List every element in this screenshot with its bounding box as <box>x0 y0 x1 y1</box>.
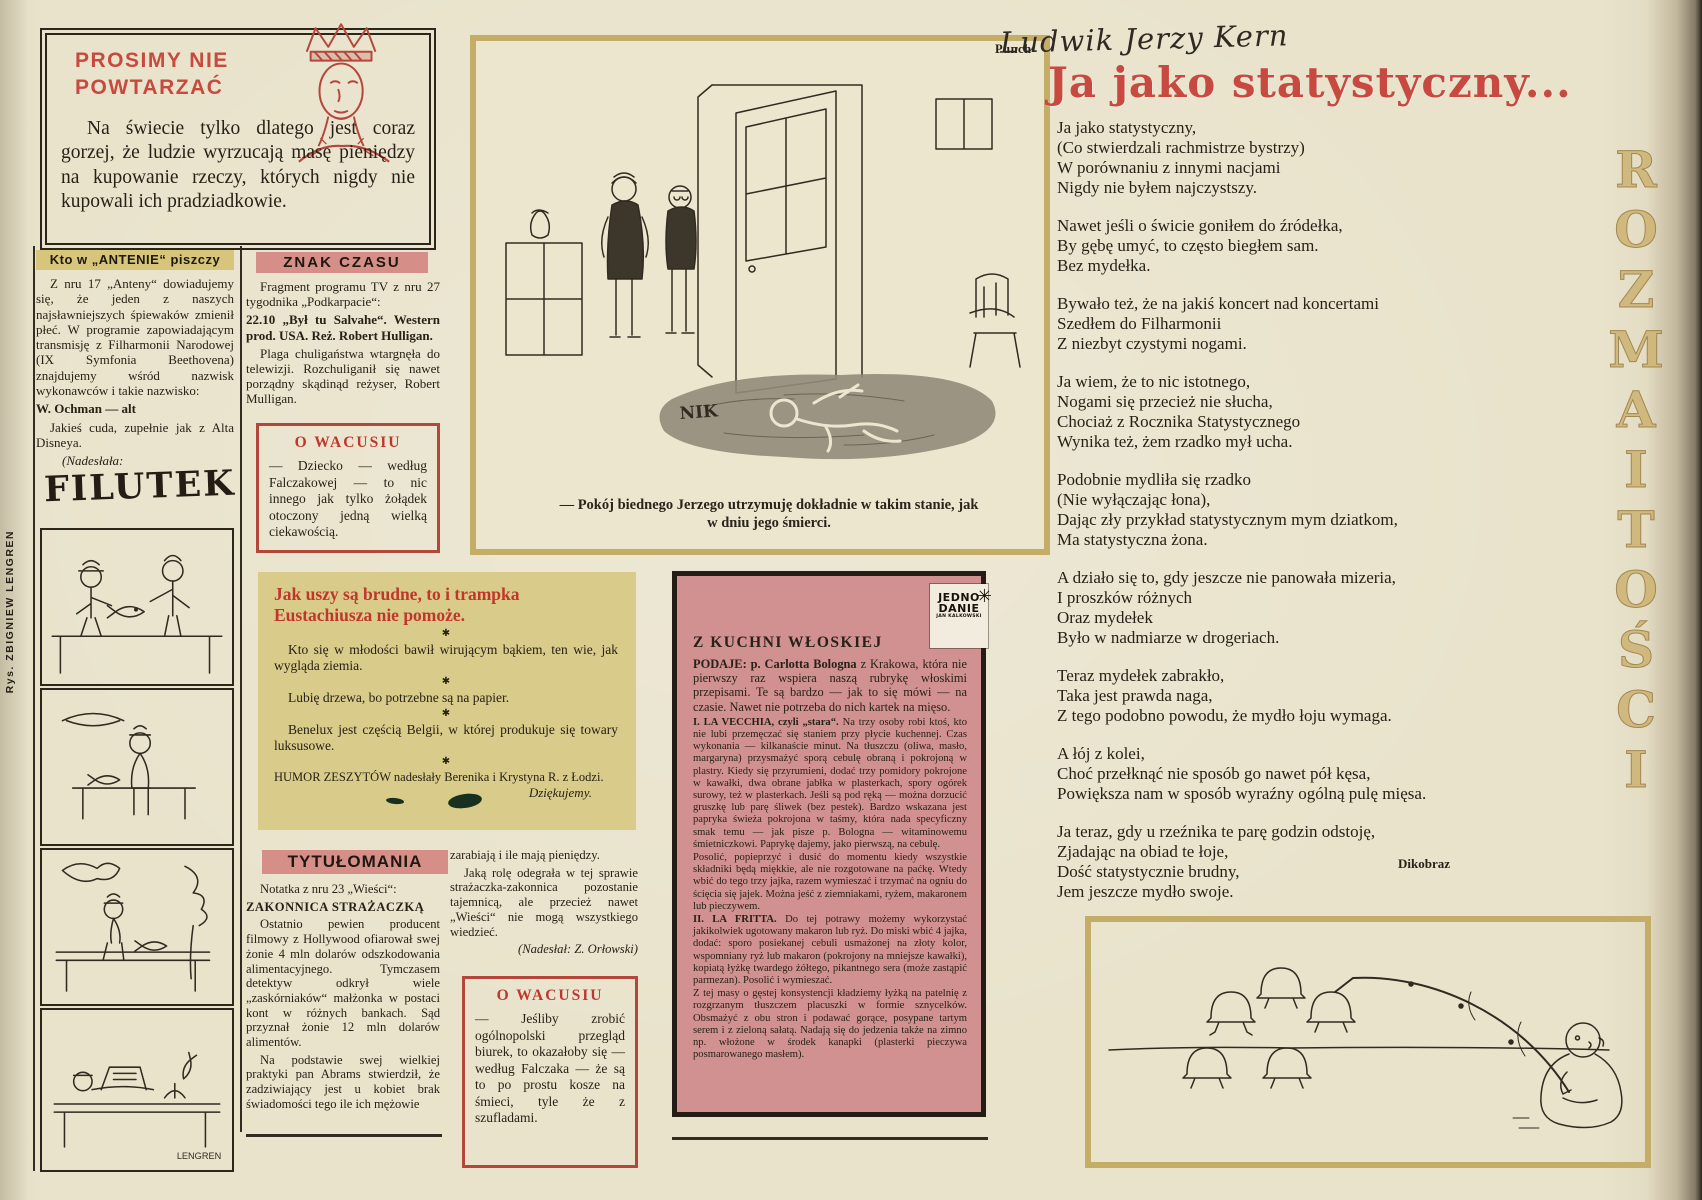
jedno-danie-logo: ✳ JEDNO DANIE JAN KALKOWSKI <box>930 584 988 648</box>
kuchnia-intro-lead: PODAJE: p. Carlotta Bologna <box>693 657 857 671</box>
tytul-p1: Notatka z nru 23 „Wieści“: <box>246 882 440 897</box>
humor-credit: HUMOR ZESZYTÓW nadesłały Berenika i Krys… <box>274 770 618 785</box>
separator-star: ✱ <box>274 708 618 720</box>
znak-p3: Plaga chuligaństwa wtargnęła do telewizj… <box>246 346 440 407</box>
poem-author-signature: Ludwik Jerzy Kern <box>1000 18 1289 60</box>
poem-stanza: Bywało też, że na jakiś koncert nad konc… <box>1057 294 1577 354</box>
kuchnia-wloska-box: Z KUCHNI WŁOSKIEJ PODAJE: p. Carlotta Bo… <box>672 571 986 1117</box>
separator-star: ✱ <box>274 756 618 768</box>
znak-p1: Fragment programu TV z nru 27 tygodnika … <box>246 279 440 309</box>
znak-czasu-body: Fragment programu TV z nru 27 tygodnika … <box>246 279 440 409</box>
humor-thanks: Dziękujemy. <box>274 785 618 801</box>
bottom-rule-left <box>246 1134 442 1137</box>
poem-stanza: A łój z kolei,Choć przełknąć nie sposób … <box>1057 744 1577 804</box>
poem-stanza: Podobnie mydliła się rzadko(Nie wyłączaj… <box>1057 470 1577 550</box>
prosimy-box: PROSIMY NIE POWTARZAĆ Na świecie tylko d… <box>45 33 431 245</box>
o-wacusiu-1-body: — Dziecko — według Falczakowej — to nic … <box>269 458 427 541</box>
znak-czasu-header: ZNAK CZASU <box>256 252 428 273</box>
filutek-panel-2 <box>40 688 234 846</box>
filutek-panel-1-drawing <box>42 530 232 683</box>
prosimy-body: Na świecie tylko dlatego jest coraz gorz… <box>61 117 415 215</box>
o-wacusiu-box-1: O WACUSIU — Dziecko — według Falczakowej… <box>256 423 440 553</box>
humor-item-2: Lubię drzewa, bo potrzebne są na papier. <box>274 690 618 706</box>
punch-cartoon-drawing: NIK <box>484 47 1036 491</box>
dikobraz-cartoon-box <box>1085 916 1651 1168</box>
filutek-panel-1 <box>40 528 234 686</box>
o-wacusiu-2-body: — Jeśliby zrobić ogólnopolski przegląd b… <box>475 1011 625 1127</box>
tytul-p7: (Nadesłał: Z. Orłowski) <box>450 942 638 957</box>
filutek-panel-2-drawing <box>42 690 232 843</box>
separator-star: ✱ <box>274 628 618 640</box>
antena-header: Kto w „ANTENIE“ piszczy <box>36 250 234 270</box>
bottom-rule-right <box>672 1137 988 1140</box>
poem-stanza: A działo się to, gdy jeszcze nie panował… <box>1057 568 1577 648</box>
humor-item-1: Kto się w młodości bawił wirującym bąkie… <box>274 642 618 674</box>
poem-body: Ja jako statystyczny,(Co stwierdzali rac… <box>1057 118 1577 920</box>
kuchnia-recipe-1b: Posolić, popieprzyć i dusić do momentu k… <box>693 852 967 913</box>
lengren-signature: LENGREN <box>177 1151 221 1161</box>
poem-stanza: Ja wiem, że to nic istotnego,Nogami się … <box>1057 372 1577 452</box>
humor-title: Jak uszy są brudne, to i trampka Eustach… <box>274 584 618 626</box>
prosimy-title-line1: PROSIMY NIE <box>75 47 229 74</box>
prosimy-title: PROSIMY NIE POWTARZAĆ <box>75 47 229 101</box>
nik-signature: NIK <box>679 401 720 424</box>
antena-p2: W. Ochman — alt <box>36 401 234 416</box>
jedno-logo-line3: JAN KALKOWSKI <box>930 614 988 620</box>
tytul-p5: zarabiają i ile mają pieniędzy. <box>450 848 638 863</box>
filutek-logo: FILUTEK <box>43 463 234 511</box>
kuchnia-recipe-2: II. LA FRITTA. Do tej potrawy możemy wyk… <box>693 914 967 987</box>
tytul-p2: ZAKONNICA STRAŻACZKĄ <box>246 900 440 915</box>
separator-star: ✱ <box>274 676 618 688</box>
humor-item-3: Benelux jest częścią Belgii, w której pr… <box>274 722 618 754</box>
tytulomania-col2: zarabiają i ile mają pieniędzy. Jaką rol… <box>450 848 638 970</box>
kuchnia-intro: PODAJE: p. Carlotta Bologna z Krakowa, k… <box>693 657 967 714</box>
tytulomania-header: TYTUŁOMANIA <box>262 850 448 874</box>
kuchnia-recipe-2b: Z tej masy o gęstej konsystencji kładzie… <box>693 988 967 1061</box>
kuchnia-recipe-1: I. LA VECCHIA, czyli „stara“. Na trzy os… <box>693 717 967 851</box>
left-column-rule <box>33 246 35 1171</box>
antena-body: Z nru 17 „Anteny“ dowiadujemy się, że je… <box>36 276 234 468</box>
punch-cartoon-box: NIK — Pokój biednego Jerzego utrzymuję d… <box>470 35 1050 555</box>
artist-credit: Rys. ZBIGNIEW LENGREN <box>4 530 16 693</box>
filutek-panel-4: LENGREN <box>40 1008 234 1172</box>
poem-stanza: Ja jako statystyczny,(Co stwierdzali rac… <box>1057 118 1577 198</box>
kuchnia-r2-lead: II. LA FRITTA. <box>693 914 777 925</box>
poem-stanza: Ja teraz, gdy u rzeźnika te parę godzin … <box>1057 822 1577 902</box>
antena-p3: Jakieś cuda, zupełnie jak z Alta Disneya… <box>36 420 234 451</box>
prosimy-title-line2: POWTARZAĆ <box>75 74 229 101</box>
burst-icon: ✳ <box>977 586 992 607</box>
mid-column-rule <box>240 246 242 1132</box>
o-wacusiu-2-header: O WACUSIU <box>475 987 625 1005</box>
kuchnia-r1-rest: Na trzy osoby robi ktoś, kto nie lubi pr… <box>693 717 967 850</box>
magazine-page: PROSIMY NIE POWTARZAĆ Na świecie tylko d… <box>0 0 1702 1200</box>
tytul-p6: Jaką rolę odegrała w tej sprawie strażac… <box>450 866 638 940</box>
tytul-p3: Ostatnio pewien producent filmowy z Holl… <box>246 917 440 1049</box>
poem-stanza: Nawet jeśli o świcie goniłem do źródełka… <box>1057 216 1577 276</box>
dikobraz-cartoon-drawing <box>1091 922 1645 1162</box>
kuchnia-r1-lead: I. LA VECCHIA, czyli „stara“. <box>693 717 839 728</box>
znak-p2: 22.10 „Był tu Salvahe“. Western prod. US… <box>246 312 440 342</box>
tytulomania-col1: Notatka z nru 23 „Wieści“: ZAKONNICA STR… <box>246 882 440 1128</box>
o-wacusiu-box-2: O WACUSIU — Jeśliby zrobić ogólnopolski … <box>462 976 638 1168</box>
kuchnia-header: Z KUCHNI WŁOSKIEJ <box>693 634 967 652</box>
rozmaitosci-vertical-title: ROZMAITOŚCI <box>1592 140 1680 800</box>
poem-title: Ja jako statystyczny... <box>1048 58 1572 107</box>
poem-stanza: Teraz mydełek zabrakło,Taka jest prawda … <box>1057 666 1577 726</box>
filutek-panel-3-drawing <box>42 850 232 1003</box>
humor-zeszytow-box: Jak uszy są brudne, to i trampka Eustach… <box>258 572 636 830</box>
filutek-panel-4-drawing: LENGREN <box>42 1010 232 1169</box>
punch-caption: — Pokój biednego Jerzego utrzymuję dokła… <box>554 497 984 532</box>
antena-p1: Z nru 17 „Anteny“ dowiadujemy się, że je… <box>36 276 234 398</box>
o-wacusiu-1-header: O WACUSIU <box>269 434 427 452</box>
filutek-panel-3 <box>40 848 234 1006</box>
dikobraz-source-label: Dikobraz <box>1398 856 1450 872</box>
tytul-p4: Na podstawie swej wielkiej praktyki pan … <box>246 1053 440 1112</box>
